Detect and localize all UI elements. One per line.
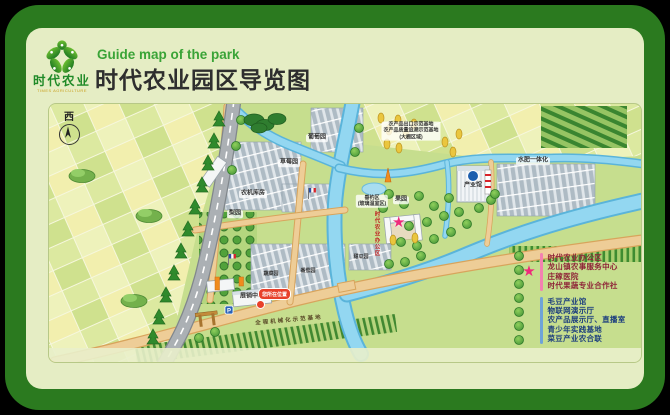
page-title: 时代农业园区导览图: [95, 61, 311, 95]
map-label: 甜瓜园: [353, 254, 368, 260]
map-label: 梨园: [227, 210, 243, 218]
legend-item: 毛豆产业馆: [548, 297, 626, 306]
map-label: 葡萄园: [306, 134, 328, 142]
logo-icon: [43, 39, 81, 75]
map-label: 产业馆: [464, 182, 482, 190]
legend-group-star: ★ 时代农业办公区龙山镇农事服务中心庄稼医院时代果蔬专业合作社: [521, 253, 639, 291]
map-label: 草莓园: [278, 159, 300, 167]
map-overlay: 西 农机库房葡萄园草莓园农产品出口示范基地 农产品质量追溯示范基地 (大棚区域)…: [49, 104, 641, 362]
legend-item: 菜豆产业农合联: [548, 334, 626, 343]
industry-hall-dot-marker: [467, 170, 479, 182]
legend-item: 时代农业办公区: [548, 253, 618, 262]
legend-item: 时代果蔬专业合作社: [548, 281, 618, 290]
legend-divider: [540, 253, 543, 291]
legend-item: 庄稼医院: [548, 272, 618, 281]
legend: ★ 时代农业办公区龙山镇农事服务中心庄稼医院时代果蔬专业合作社 毛豆产业馆物联网…: [521, 253, 639, 350]
office-star-marker: ★: [392, 215, 405, 230]
map-label: 垂钓区 (玻璃温室区): [356, 195, 388, 208]
legend-star-icon: ★: [522, 263, 535, 280]
legend-item: 龙山镇农事服务中心: [548, 262, 618, 271]
you-are-here-dot: [256, 300, 265, 309]
legend-group-dot: 毛豆产业馆物联网演示厅农产品展示厅、直播室青少年实践基地菜豆产业农合联: [521, 297, 639, 344]
logo-title: 时代农业: [33, 75, 91, 88]
map: P: [48, 103, 642, 363]
map-label: 果园: [393, 196, 409, 204]
map-label: 农机库房: [239, 190, 267, 198]
map-label: 时代农业办公区: [373, 211, 380, 257]
map-label: 番茄园: [300, 268, 315, 274]
map-label: 蔬菜园: [263, 271, 278, 277]
logo: 时代农业 TIMES AGRICULTURE: [33, 39, 91, 93]
legend-item: 农产品展示厅、直播室: [548, 315, 626, 324]
map-label: 全程机械化示范基地: [255, 315, 323, 328]
you-are-here-badge: 您所在位置: [258, 288, 291, 300]
map-label: 农产品出口示范基地 农产品质量追溯示范基地 (大棚区域): [381, 122, 440, 141]
legend-item: 青少年实践基地: [548, 325, 626, 334]
legend-divider: [540, 297, 543, 344]
map-label: 水肥一体化: [516, 157, 550, 165]
header-subtitle: Guide map of the park: [97, 47, 240, 62]
logo-tagline: TIMES AGRICULTURE: [33, 88, 91, 93]
